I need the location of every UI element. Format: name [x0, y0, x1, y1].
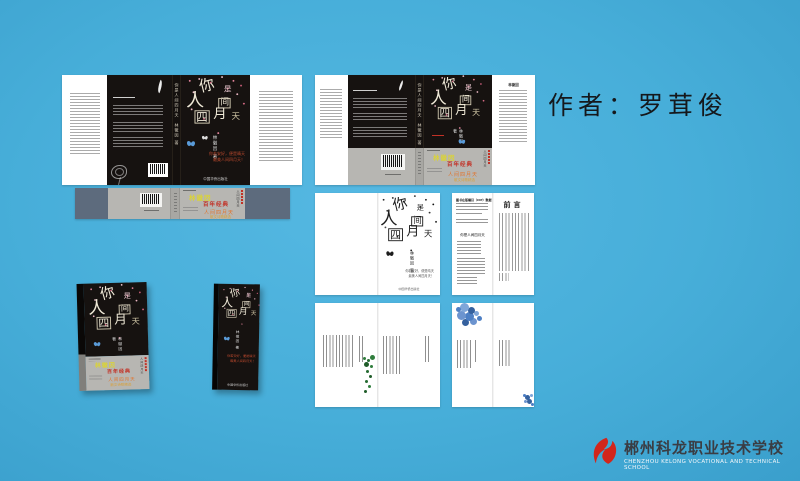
band-micro-text	[89, 375, 102, 379]
barcode	[148, 163, 168, 177]
back-text-block	[353, 127, 407, 139]
jacket-back-flap: 林徽因	[492, 75, 535, 185]
title-char: 四	[194, 110, 209, 123]
flap-heading: 林徽因	[492, 83, 535, 88]
band-micro-text	[427, 168, 442, 173]
book-band: 林徽因 百年经典 人间四月天 散文诗歌精选 人间四月天	[86, 355, 150, 391]
title-page-tagline: 你若安好，便是晴天 最美人间四月天！	[388, 269, 434, 279]
title-char: 是	[224, 85, 232, 93]
band-spine	[170, 188, 180, 219]
poem-page-left	[315, 303, 378, 407]
butterfly-icon	[459, 140, 465, 145]
interior-spread-title: 你是人间四月天 林徽因 著 你若安好，便是晴天 最美人间四月天！ 中国华侨出版社	[315, 193, 440, 295]
butterfly-icon	[202, 136, 207, 140]
bird-specks	[383, 199, 385, 201]
red-square-dots	[241, 190, 243, 208]
title-char: 人	[430, 90, 447, 107]
petal-specks	[433, 79, 435, 81]
poem-text-columns	[383, 336, 402, 374]
title-char: 月	[239, 307, 248, 316]
red-dash	[432, 135, 444, 136]
interior-spread-poem-1	[315, 303, 440, 407]
interior-spread-preface: 图书在版编目（CIP）数据 你是人间四月天 前言	[452, 193, 534, 295]
publisher-name: 中国华侨出版社	[378, 287, 440, 291]
title-page: 你是人间四月天 林徽因 著 你若安好，便是晴天 最美人间四月天！ 中国华侨出版社	[378, 193, 440, 295]
copyright-title: 你是人间四月天	[452, 233, 493, 238]
spine-title: 你是人间四月天 林徽因 著	[417, 83, 423, 145]
jacket-band-front: 林徽因 百年经典 人间四月天 散文诗歌精选 人间四月天	[180, 188, 245, 219]
cover-tagline: 你若安好，便是晴天 最美人间四月天！	[222, 354, 256, 365]
cover-title-art: 你是人间四月天	[429, 77, 484, 130]
band-back	[108, 188, 170, 219]
poem-page-left	[452, 303, 493, 407]
flap-text-block	[499, 90, 527, 142]
band-micro-text	[183, 207, 198, 212]
front-cover: 你是人间四月天 林徽因 著 林徽因 百年经典 人间四月天 散文诗歌精选 人间四月…	[424, 75, 492, 185]
cip-text-block	[456, 219, 488, 225]
title-char: 月	[213, 108, 226, 121]
rose-sketch	[111, 165, 127, 179]
back-heading-line	[113, 97, 135, 100]
poem-text-columns	[323, 335, 353, 367]
title-char: 天	[424, 231, 432, 239]
title-char: 四	[438, 107, 452, 119]
band-right-rail: 人间四月天	[483, 150, 490, 168]
petal-specks	[189, 80, 191, 82]
copyright-page: 图书在版编目（CIP）数据 你是人间四月天	[452, 193, 493, 295]
credits-block	[457, 277, 477, 285]
jacket-back-flap	[250, 75, 302, 185]
jacket-spread-banded: 你是人间四月天 林徽因 著 你是人间四月天 林徽因 著 林徽因 百年经典 人间四…	[315, 75, 535, 185]
title-char: 天	[251, 311, 257, 317]
band-series-text: 人间四月天	[448, 171, 478, 178]
cover-tagline: 你若安好，便是晴天 最美人间四月天！	[195, 151, 245, 164]
back-text-block	[353, 113, 407, 122]
cover-title-art: 你是人间四月天	[220, 288, 259, 326]
band-flap-left	[75, 188, 108, 219]
title-char: 人	[88, 300, 106, 318]
title-char: 四	[388, 228, 403, 241]
cover-title-art: 你是人间四月天	[87, 285, 144, 341]
red-square-dots	[145, 357, 147, 375]
back-text-block	[113, 105, 163, 117]
flap-text-block	[259, 91, 293, 161]
title-char: 人	[380, 211, 397, 228]
butterfly-icon	[386, 251, 392, 256]
blue-flower-small	[523, 394, 526, 397]
back-text-block	[353, 98, 407, 108]
band-classic-text: 百年经典	[447, 160, 473, 168]
petal-specks	[90, 288, 92, 290]
jacket-band-front: 林徽因 百年经典 人间四月天 散文诗歌精选 人间四月天	[86, 355, 150, 391]
front-cover: 你是人间四月天 林徽因 著 你若安好，便是晴天 最美人间四月天！ 中国华侨出版社	[181, 75, 250, 185]
band-vertical-text: 人间四月天	[140, 357, 144, 375]
jacket-front-flap	[315, 75, 348, 185]
credits-block	[457, 241, 481, 255]
poem-text-columns	[457, 340, 471, 368]
band-classic-text: 百年经典	[203, 200, 229, 208]
band-right-rail: 人间四月天	[140, 357, 147, 375]
spine: 你是人间四月天 林徽因 著	[415, 75, 424, 185]
band-flap-right	[245, 188, 290, 219]
publisher-name: 中国华侨出版社	[181, 177, 250, 182]
spine: 你是人间四月天 林徽因 著	[172, 75, 181, 185]
jacket-front-flap	[62, 75, 107, 185]
red-square-dots	[488, 150, 490, 168]
preface-heading: 前言	[493, 200, 534, 210]
band-right-rail: 人间四月天	[236, 190, 243, 208]
back-cover	[107, 75, 172, 185]
poem-title-column	[425, 336, 429, 362]
petal-specks	[223, 289, 224, 290]
book-front-cover: 你是人间四月天 林徽因 著 你若安好，便是晴天 最美人间四月天！ 中国华侨出版社	[217, 284, 260, 391]
title-char: 人	[221, 297, 233, 309]
barcode	[381, 154, 405, 170]
preface-signoff	[499, 273, 509, 281]
isbn-line	[456, 213, 482, 216]
book-mockup-black: 你是人间四月天 林徽因 著 你若安好，便是晴天 最美人间四月天！ 中国华侨出版社	[212, 284, 260, 391]
title-char: 是	[124, 293, 131, 300]
plant-illustration	[363, 357, 366, 360]
poem-page-right	[378, 303, 440, 407]
title-char: 天	[132, 319, 140, 327]
title-char: 月	[406, 226, 419, 239]
book-front-cover: 你是人间四月天 林徽因 著	[84, 282, 149, 357]
credits-block	[457, 258, 485, 274]
cip-text-block	[456, 203, 488, 210]
school-name-zh: 郴州科龙职业技术学校	[624, 437, 800, 458]
title-char: 是	[417, 204, 424, 211]
feather-icon	[397, 80, 405, 91]
title-char: 四	[96, 316, 111, 329]
feather-icon	[156, 80, 165, 94]
back-heading-line	[353, 90, 377, 93]
title-char: 天	[472, 110, 480, 118]
school-logo: 郴州科龙职业技术学校 CHENZHOU KELONG VOCATIONAL AN…	[590, 437, 800, 471]
blue-flowers-illustration	[456, 307, 461, 312]
publisher-name: 中国华侨出版社	[217, 383, 258, 388]
title-char: 是	[465, 84, 472, 91]
title-char: 天	[232, 113, 241, 122]
book-mockup-banded: 你是人间四月天 林徽因 著 林徽因 百年经典 人间四月天 散文诗歌精选 人间四月…	[77, 282, 150, 391]
band-spine-text	[174, 193, 177, 213]
title-char: 是	[246, 293, 251, 298]
jacket-spread-full: 你是人间四月天 林徽因 著 你是人间四月天 林徽因 著 你若安好，便是晴天 最美…	[62, 75, 302, 185]
preface-page: 前言	[493, 193, 534, 295]
band-classic-text: 百年经典	[107, 368, 131, 376]
spine-title: 你是人间四月天 林徽因 著	[174, 83, 180, 145]
cover-author: 林徽因 著	[452, 129, 464, 148]
poem-text-columns	[499, 340, 511, 366]
flap-text-block	[70, 93, 100, 155]
jacket-band-front: 林徽因 百年经典 人间四月天 散文诗歌精选 人间四月天	[424, 148, 492, 185]
interior-spread-poem-2	[452, 303, 534, 407]
cover-title-art: 你是人间四月天	[185, 78, 244, 135]
back-cover	[348, 75, 415, 185]
poem-title-column	[475, 340, 478, 362]
cip-heading: 图书在版编目（CIP）数据	[456, 198, 492, 202]
band-vertical-text: 人间四月天	[483, 150, 487, 168]
flap-text-block	[320, 89, 342, 139]
title-char: 人	[186, 92, 204, 110]
band-subtitle-text: 散文诗歌精选	[210, 215, 231, 219]
poem-page-right	[493, 303, 534, 407]
author-caption: 作者：罗茸俊	[548, 86, 728, 122]
butterfly-icon	[94, 342, 100, 347]
band-vertical-text: 人间四月天	[236, 190, 240, 208]
butterfly-icon	[224, 337, 229, 341]
band-front-wrap: 林徽因 百年经典 人间四月天 散文诗歌精选 人间四月天	[180, 188, 245, 219]
cover-author: 林徽因 著	[111, 337, 124, 356]
title-char: 月	[114, 314, 127, 327]
butterfly-icon	[187, 141, 194, 147]
back-text-block	[113, 122, 163, 132]
back-text-block	[113, 137, 163, 149]
isbn-micro-text	[144, 210, 159, 212]
preface-text-columns	[499, 213, 529, 271]
jacket-bottom-band: 林徽因 百年经典 人间四月天 散文诗歌精选 人间四月天	[75, 188, 290, 219]
cover-author: 林徽因 著	[236, 330, 241, 350]
title-page-art: 你是人间四月天	[379, 197, 436, 252]
isbn-micro-text	[385, 174, 401, 176]
band-subtitle-text: 散文诗歌精选	[454, 178, 475, 183]
logo-text: 郴州科龙职业技术学校 CHENZHOU KELONG VOCATIONAL AN…	[624, 437, 800, 471]
school-name-en: CHENZHOU KELONG VOCATIONAL AND TECHNICAL…	[624, 459, 800, 471]
barcode	[140, 193, 162, 207]
band-spine-text	[418, 152, 421, 174]
title-char: 月	[455, 104, 467, 116]
title-char: 四	[226, 309, 236, 318]
logo-swoosh-icon	[590, 437, 620, 471]
band-subtitle-text: 散文诗歌精选	[110, 383, 131, 389]
